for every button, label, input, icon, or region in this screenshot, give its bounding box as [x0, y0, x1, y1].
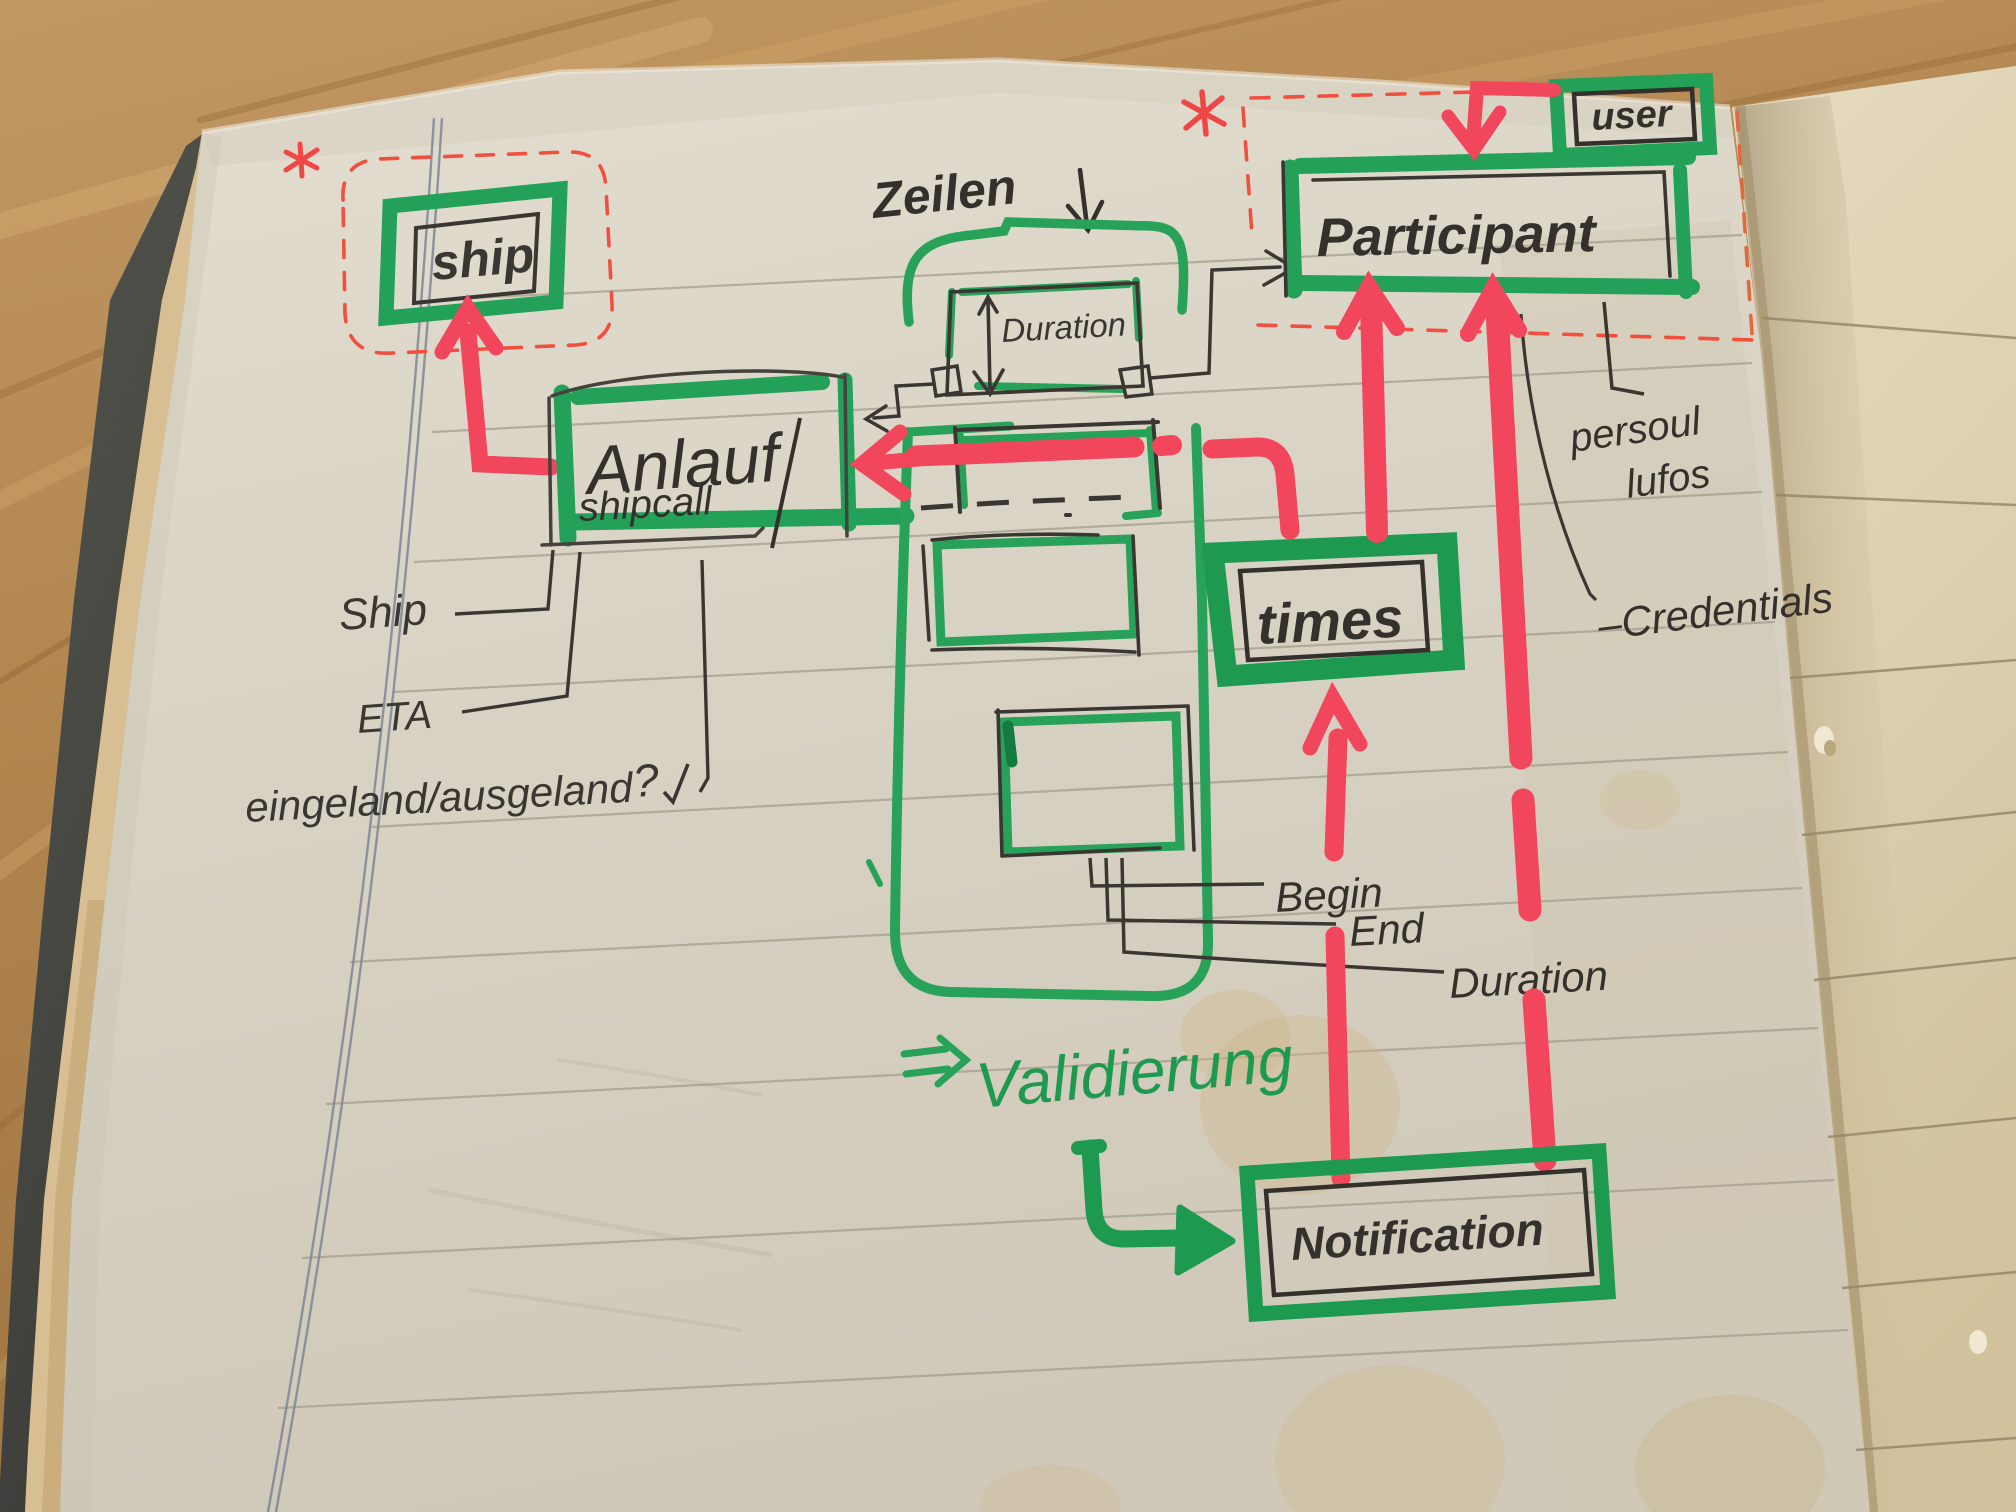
svg-text:Participant: Participant — [1316, 203, 1598, 268]
svg-text:?: ? — [632, 754, 661, 807]
svg-text:Duration: Duration — [1000, 305, 1126, 348]
svg-text:user: user — [1590, 93, 1675, 139]
svg-text:ship: ship — [429, 226, 536, 291]
svg-text:Ship: Ship — [337, 585, 428, 640]
svg-text:times: times — [1255, 585, 1404, 656]
svg-text:shipcall: shipcall — [578, 479, 715, 530]
svg-text:ETA: ETA — [356, 693, 434, 742]
svg-text:End: End — [1348, 904, 1427, 955]
